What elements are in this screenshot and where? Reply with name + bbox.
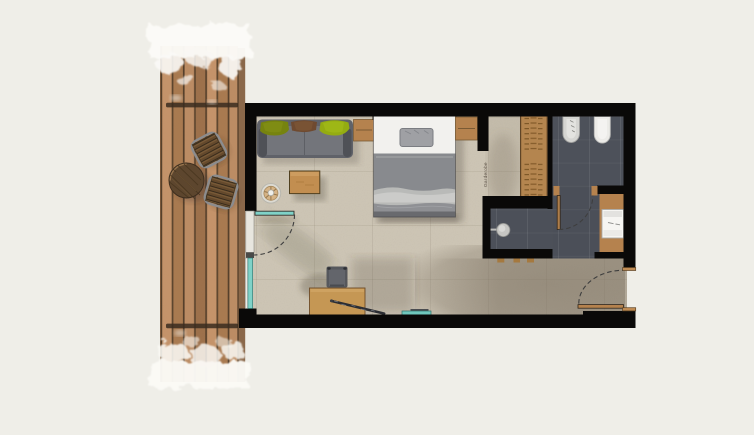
- svg-text:Garderobe: Garderobe: [483, 162, 489, 187]
